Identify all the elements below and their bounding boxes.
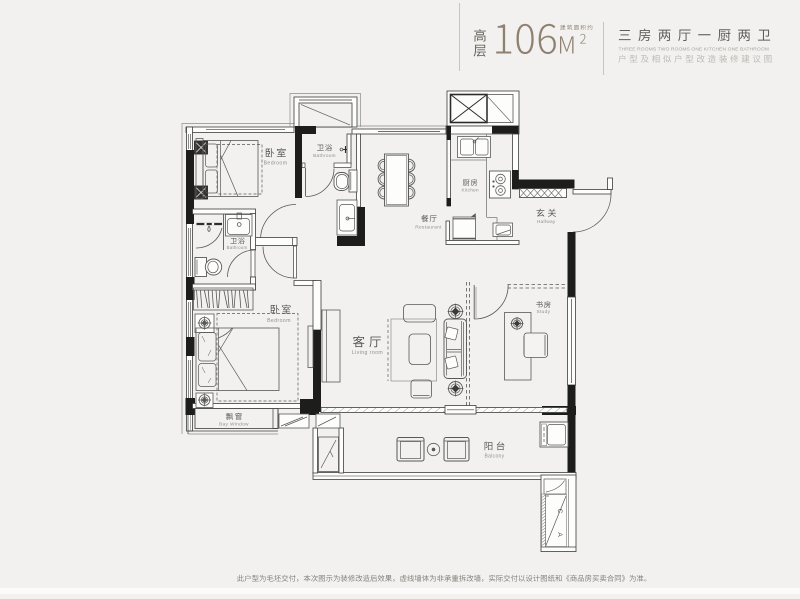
svg-text:Balcony: Balcony bbox=[485, 454, 505, 460]
svg-text:Living room: Living room bbox=[352, 350, 383, 356]
svg-text:C: C bbox=[556, 509, 563, 514]
svg-text:Hallway: Hallway bbox=[537, 219, 556, 225]
svg-text:THREE ROOMS TWO ROOMS ONE KI: THREE ROOMS TWO ROOMS ONE KITCHEN ONE BA… bbox=[619, 47, 769, 53]
svg-text:Bathroom: Bathroom bbox=[227, 245, 248, 250]
svg-text:Kitchen: Kitchen bbox=[461, 188, 479, 193]
svg-text:Bedroom: Bedroom bbox=[267, 318, 291, 324]
svg-text:Study: Study bbox=[537, 309, 551, 315]
svg-text:Restaurant: Restaurant bbox=[415, 225, 442, 231]
svg-text:Bay Window: Bay Window bbox=[219, 422, 249, 428]
svg-text:Bathroom: Bathroom bbox=[313, 153, 336, 158]
svg-text:Bedroom: Bedroom bbox=[264, 161, 288, 167]
svg-text:A: A bbox=[556, 532, 563, 537]
